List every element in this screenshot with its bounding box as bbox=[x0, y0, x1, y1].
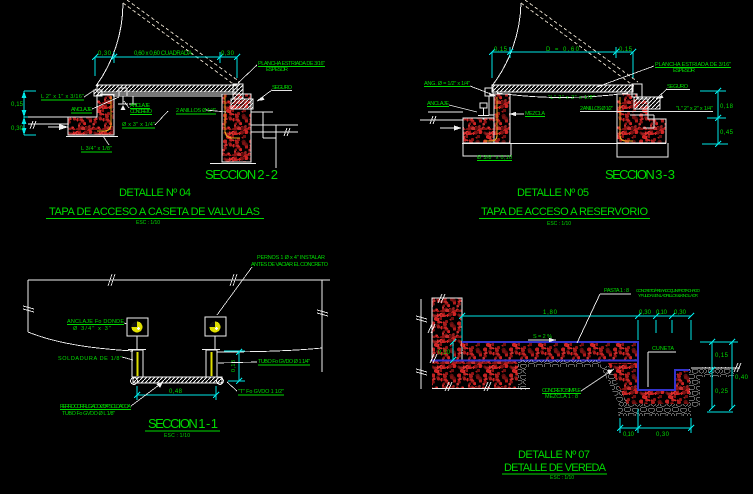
svg-text:0,30: 0,30 bbox=[656, 432, 670, 438]
svg-text:TAPA DE ACCESO A RESERVORIO: TAPA DE ACCESO A RESERVORIO bbox=[481, 206, 648, 218]
svg-text:DETALLE DE VEREDA: DETALLE DE VEREDA bbox=[504, 462, 607, 474]
svg-text:0,30: 0,30 bbox=[98, 51, 112, 57]
svg-text:Ø 3/8" x 0,10: Ø 3/8" x 0,10 bbox=[477, 155, 512, 161]
svg-text:FIERRO CORRUGADO Ø 3/4" SOLDAD: FIERRO CORRUGADO Ø 3/4" SOLDADO A bbox=[60, 404, 131, 410]
svg-text:0,40: 0,40 bbox=[735, 375, 749, 381]
svg-text:0,15: 0,15 bbox=[619, 47, 633, 53]
svg-text:ANCLAJE: ANCLAJE bbox=[71, 107, 92, 113]
svg-text:PASTA 1 : 8: PASTA 1 : 8 bbox=[604, 288, 629, 294]
svg-text:ANCLAJE Fo DONDE: ANCLAJE Fo DONDE bbox=[67, 319, 124, 325]
svg-text:"T" Fo GVDO 1 1/2": "T" Fo GVDO 1 1/2" bbox=[238, 389, 284, 395]
svg-text:ANG. Ø = 1/2" x 1/4": ANG. Ø = 1/2" x 1/4" bbox=[424, 81, 470, 87]
svg-text:0,45: 0,45 bbox=[720, 130, 734, 136]
svg-text:SECCION 1 - 1: SECCION 1 - 1 bbox=[148, 416, 218, 431]
svg-text:2 ANILLOS Ø 1/4": 2 ANILLOS Ø 1/4" bbox=[176, 108, 216, 114]
svg-text:ESC : 1/10: ESC : 1/10 bbox=[550, 475, 574, 481]
svg-text:0,30: 0,30 bbox=[221, 51, 235, 57]
svg-text:SECCION 3 - 3: SECCION 3 - 3 bbox=[605, 167, 675, 182]
svg-text:0,10: 0,10 bbox=[656, 310, 668, 316]
svg-text:Y PULIDAS EN LADRILLOS & KING: Y PULIDAS EN LADRILLOS & KING LADR bbox=[638, 293, 699, 298]
svg-text:L 3/4" x 1/8": L 3/4" x 1/8" bbox=[81, 146, 112, 152]
svg-text:TAPA DE ACCESO A CASETA DE VAL: TAPA DE ACCESO A CASETA DE VALVULAS bbox=[49, 206, 260, 218]
svg-text:SECCION 2 - 2: SECCION 2 - 2 bbox=[205, 167, 278, 182]
svg-text:0,18: 0,18 bbox=[720, 104, 734, 110]
svg-text:0,10: 0,10 bbox=[623, 432, 635, 438]
svg-text:0,15: 0,15 bbox=[715, 353, 729, 359]
svg-text:CUNETA: CUNETA bbox=[652, 346, 674, 352]
svg-text:Ø 3/4" x 3": Ø 3/4" x 3" bbox=[73, 326, 111, 332]
svg-text:DETALLE Nº 05: DETALLE Nº 05 bbox=[517, 187, 589, 199]
svg-text:PERNOS 1 Ø x 4" INSTALAR: PERNOS 1 Ø x 4" INSTALAR bbox=[257, 255, 325, 261]
svg-text:0,30: 0,30 bbox=[674, 310, 687, 316]
svg-text:"L" 2" x 2" x 1/8": "L" 2" x 2" x 1/8" bbox=[548, 95, 595, 101]
svg-text:1,80: 1,80 bbox=[543, 310, 558, 316]
svg-text:TUBO Fo GVDO Ø 1 1/4": TUBO Fo GVDO Ø 1 1/4" bbox=[258, 359, 310, 365]
svg-text:SOLDADURA DE 1/8": SOLDADURA DE 1/8" bbox=[58, 356, 122, 362]
svg-text:0,48: 0,48 bbox=[169, 389, 183, 395]
svg-text:ESPESOR: ESPESOR bbox=[673, 68, 695, 74]
svg-text:DETALLE Nº 04: DETALLE Nº 04 bbox=[119, 187, 191, 199]
svg-text:ESC : 1/10: ESC : 1/10 bbox=[136, 220, 160, 226]
svg-text:0,15: 0,15 bbox=[11, 102, 24, 108]
svg-text:ESPESOR: ESPESOR bbox=[266, 67, 288, 73]
svg-text:0,18: 0,18 bbox=[231, 360, 237, 372]
svg-text:0,15: 0,15 bbox=[494, 47, 508, 53]
svg-text:ESC : 1/10: ESC : 1/10 bbox=[164, 433, 190, 439]
svg-text:0,60 x 0,60 CUADRADA: 0,60 x 0,60 CUADRADA bbox=[134, 51, 192, 57]
svg-text:ANCLAJE: ANCLAJE bbox=[427, 101, 449, 107]
svg-text:0,30: 0,30 bbox=[639, 310, 652, 316]
svg-text:MEZCLA: MEZCLA bbox=[525, 111, 545, 117]
svg-text:TUBO Fo GVDO Ø L 1/8": TUBO Fo GVDO Ø L 1/8" bbox=[62, 411, 115, 417]
svg-text:CONCRETO: CONCRETO bbox=[130, 109, 153, 115]
svg-text:L 2" x 1" x 3/16": L 2" x 1" x 3/16" bbox=[41, 94, 84, 100]
svg-text:0,10: 0,10 bbox=[438, 350, 451, 356]
svg-text:DETALLE Nº 07: DETALLE Nº 07 bbox=[518, 449, 590, 461]
svg-text:0,25: 0,25 bbox=[715, 389, 729, 395]
svg-text:0,30: 0,30 bbox=[11, 126, 24, 132]
svg-text:MEZCLA 1 : 8: MEZCLA 1 : 8 bbox=[545, 394, 578, 400]
svg-text:ESC : 1/10: ESC : 1/10 bbox=[547, 221, 571, 227]
svg-text:ANTES DE VACIAR EL CONCRETO: ANTES DE VACIAR EL CONCRETO bbox=[251, 262, 329, 268]
svg-text:Ø x 3" x 1/4": Ø x 3" x 1/4" bbox=[122, 122, 155, 128]
